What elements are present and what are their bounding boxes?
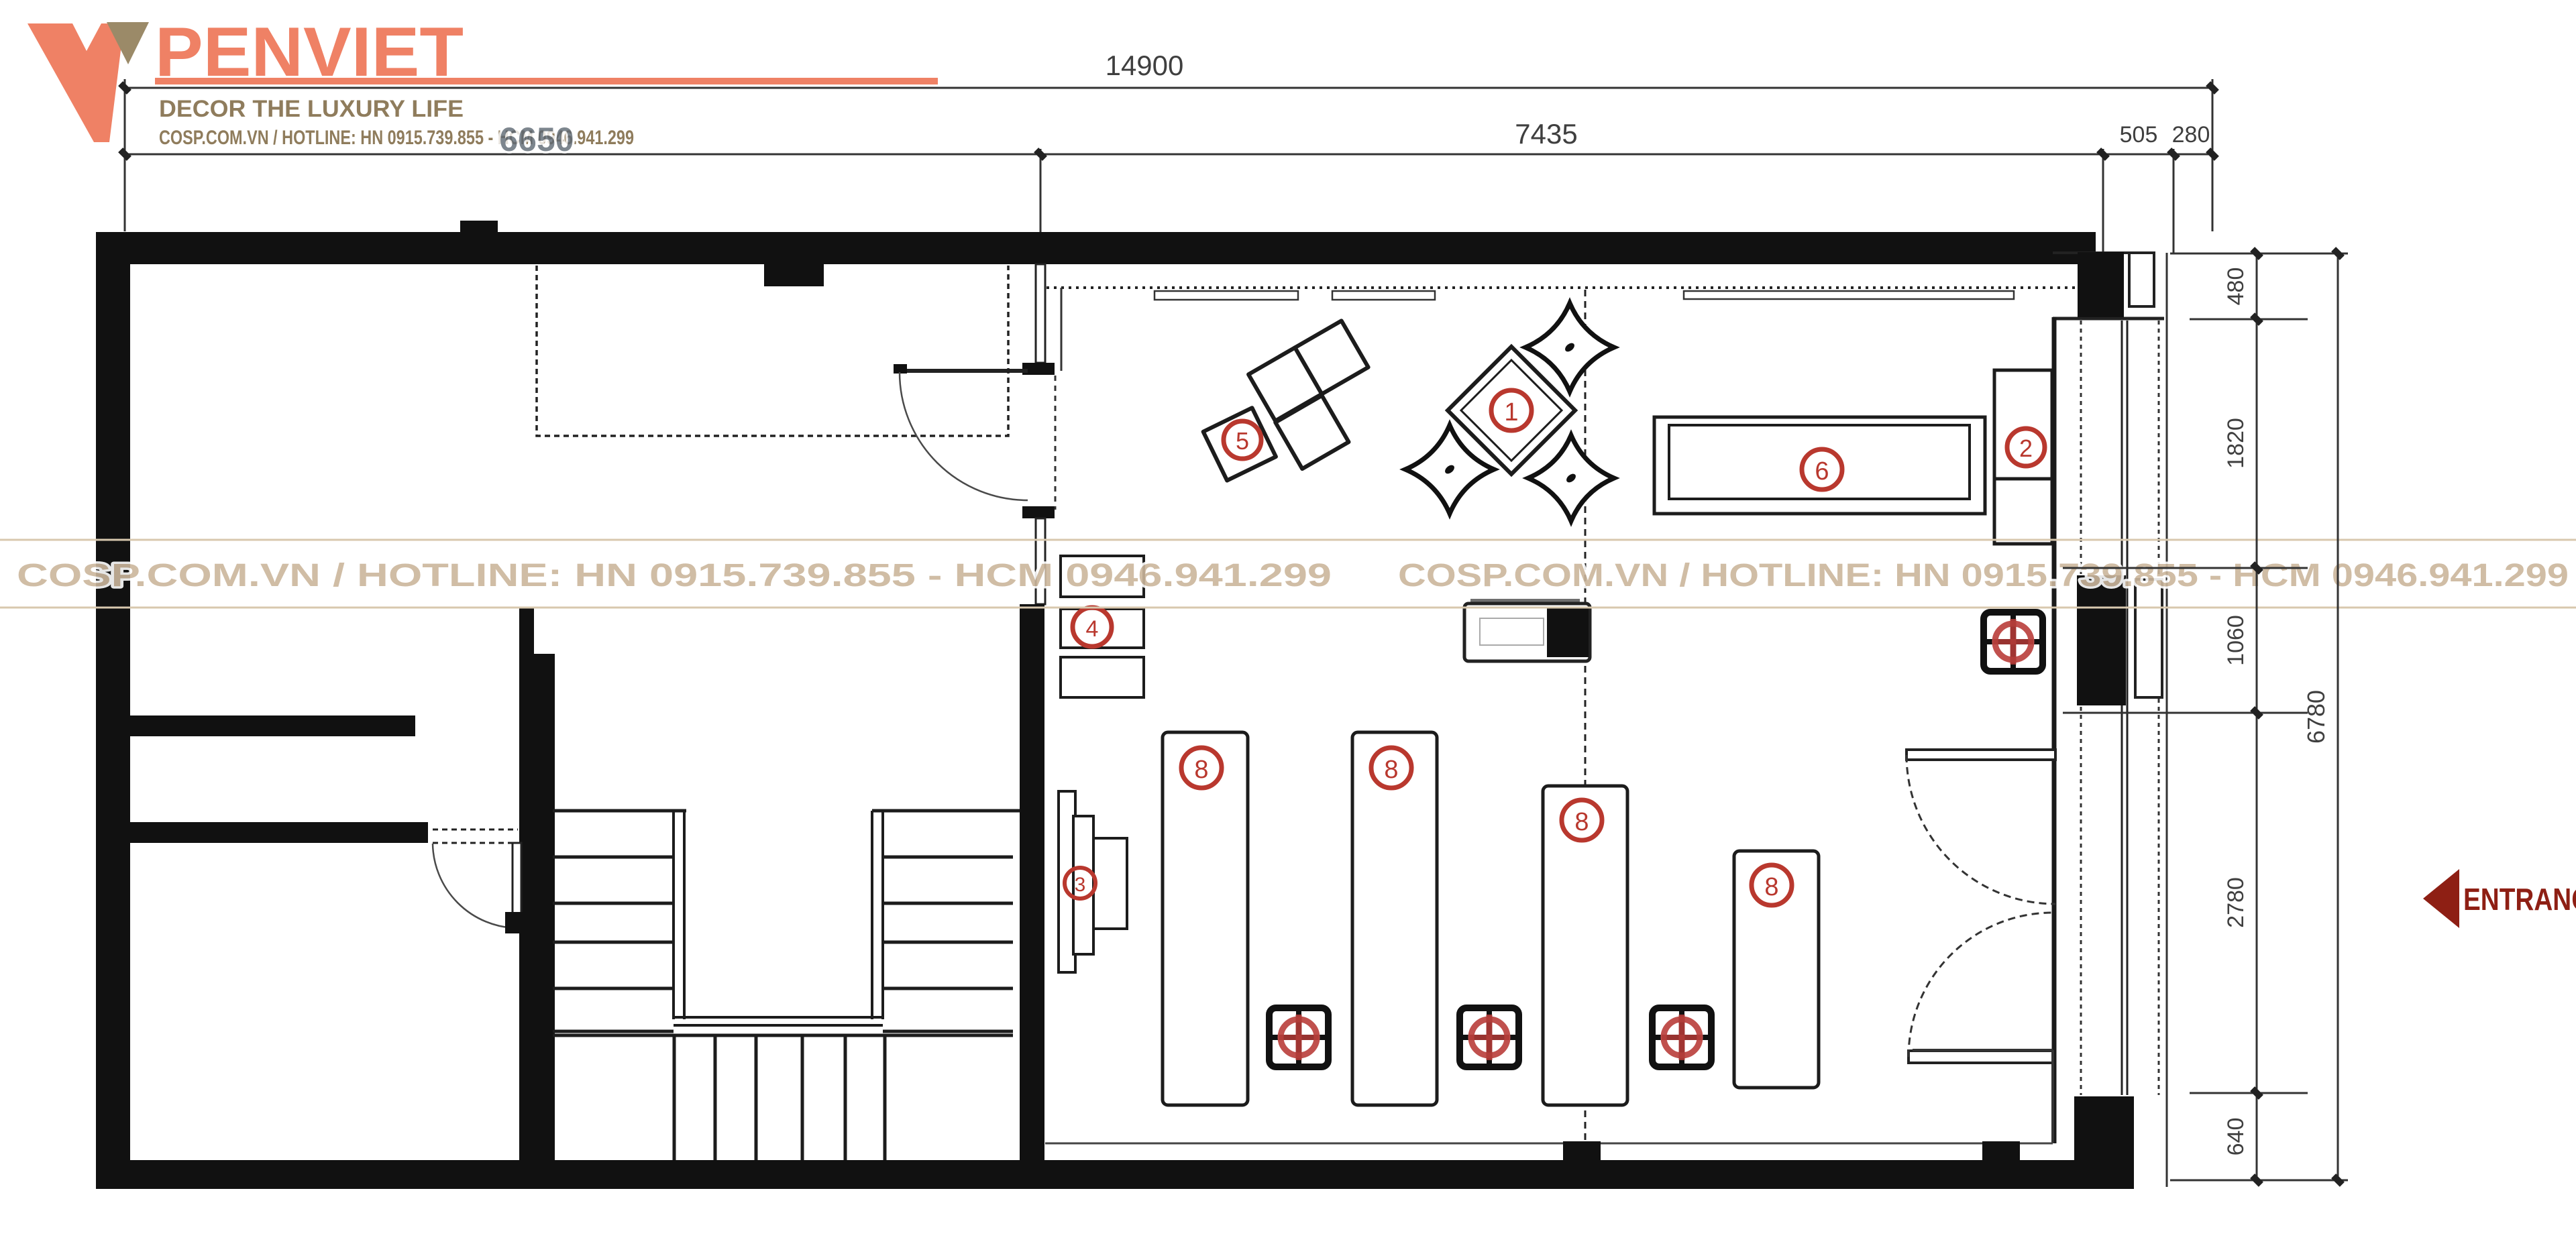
svg-text:640: 640 bbox=[2223, 1118, 2249, 1156]
svg-text:3: 3 bbox=[1075, 874, 1086, 896]
svg-text:8: 8 bbox=[1384, 756, 1398, 784]
svg-text:6650: 6650 bbox=[499, 121, 574, 158]
svg-text:ENTRANCE: ENTRANCE bbox=[2463, 882, 2576, 917]
svg-text:280: 280 bbox=[2172, 122, 2210, 148]
svg-text:8: 8 bbox=[1574, 808, 1589, 836]
svg-text:480: 480 bbox=[2223, 268, 2249, 306]
svg-text:14900: 14900 bbox=[1106, 50, 1184, 81]
svg-text:6780: 6780 bbox=[2302, 690, 2330, 744]
svg-text:5: 5 bbox=[1236, 427, 1249, 455]
svg-text:2: 2 bbox=[2019, 435, 2033, 462]
svg-text:7435: 7435 bbox=[1515, 118, 1577, 150]
svg-text:COSP.COM.VN / HOTLINE: HN 0915: COSP.COM.VN / HOTLINE: HN 0915.739.855 -… bbox=[1398, 558, 2569, 593]
svg-text:8: 8 bbox=[1194, 756, 1208, 784]
svg-text:505: 505 bbox=[2120, 122, 2158, 148]
svg-text:DECOR THE LUXURY LIFE: DECOR THE LUXURY LIFE bbox=[159, 96, 464, 122]
svg-text:4: 4 bbox=[1086, 616, 1099, 642]
svg-text:8: 8 bbox=[1764, 873, 1778, 901]
svg-text:COSP.COM.VN / HOTLINE: HN 0915: COSP.COM.VN / HOTLINE: HN 0915.739.855 -… bbox=[17, 558, 1332, 593]
svg-text:1820: 1820 bbox=[2223, 418, 2249, 469]
svg-text:2780: 2780 bbox=[2223, 877, 2249, 928]
svg-text:1: 1 bbox=[1504, 398, 1518, 426]
svg-text:6: 6 bbox=[1815, 457, 1829, 485]
svg-text:1060: 1060 bbox=[2223, 615, 2249, 666]
